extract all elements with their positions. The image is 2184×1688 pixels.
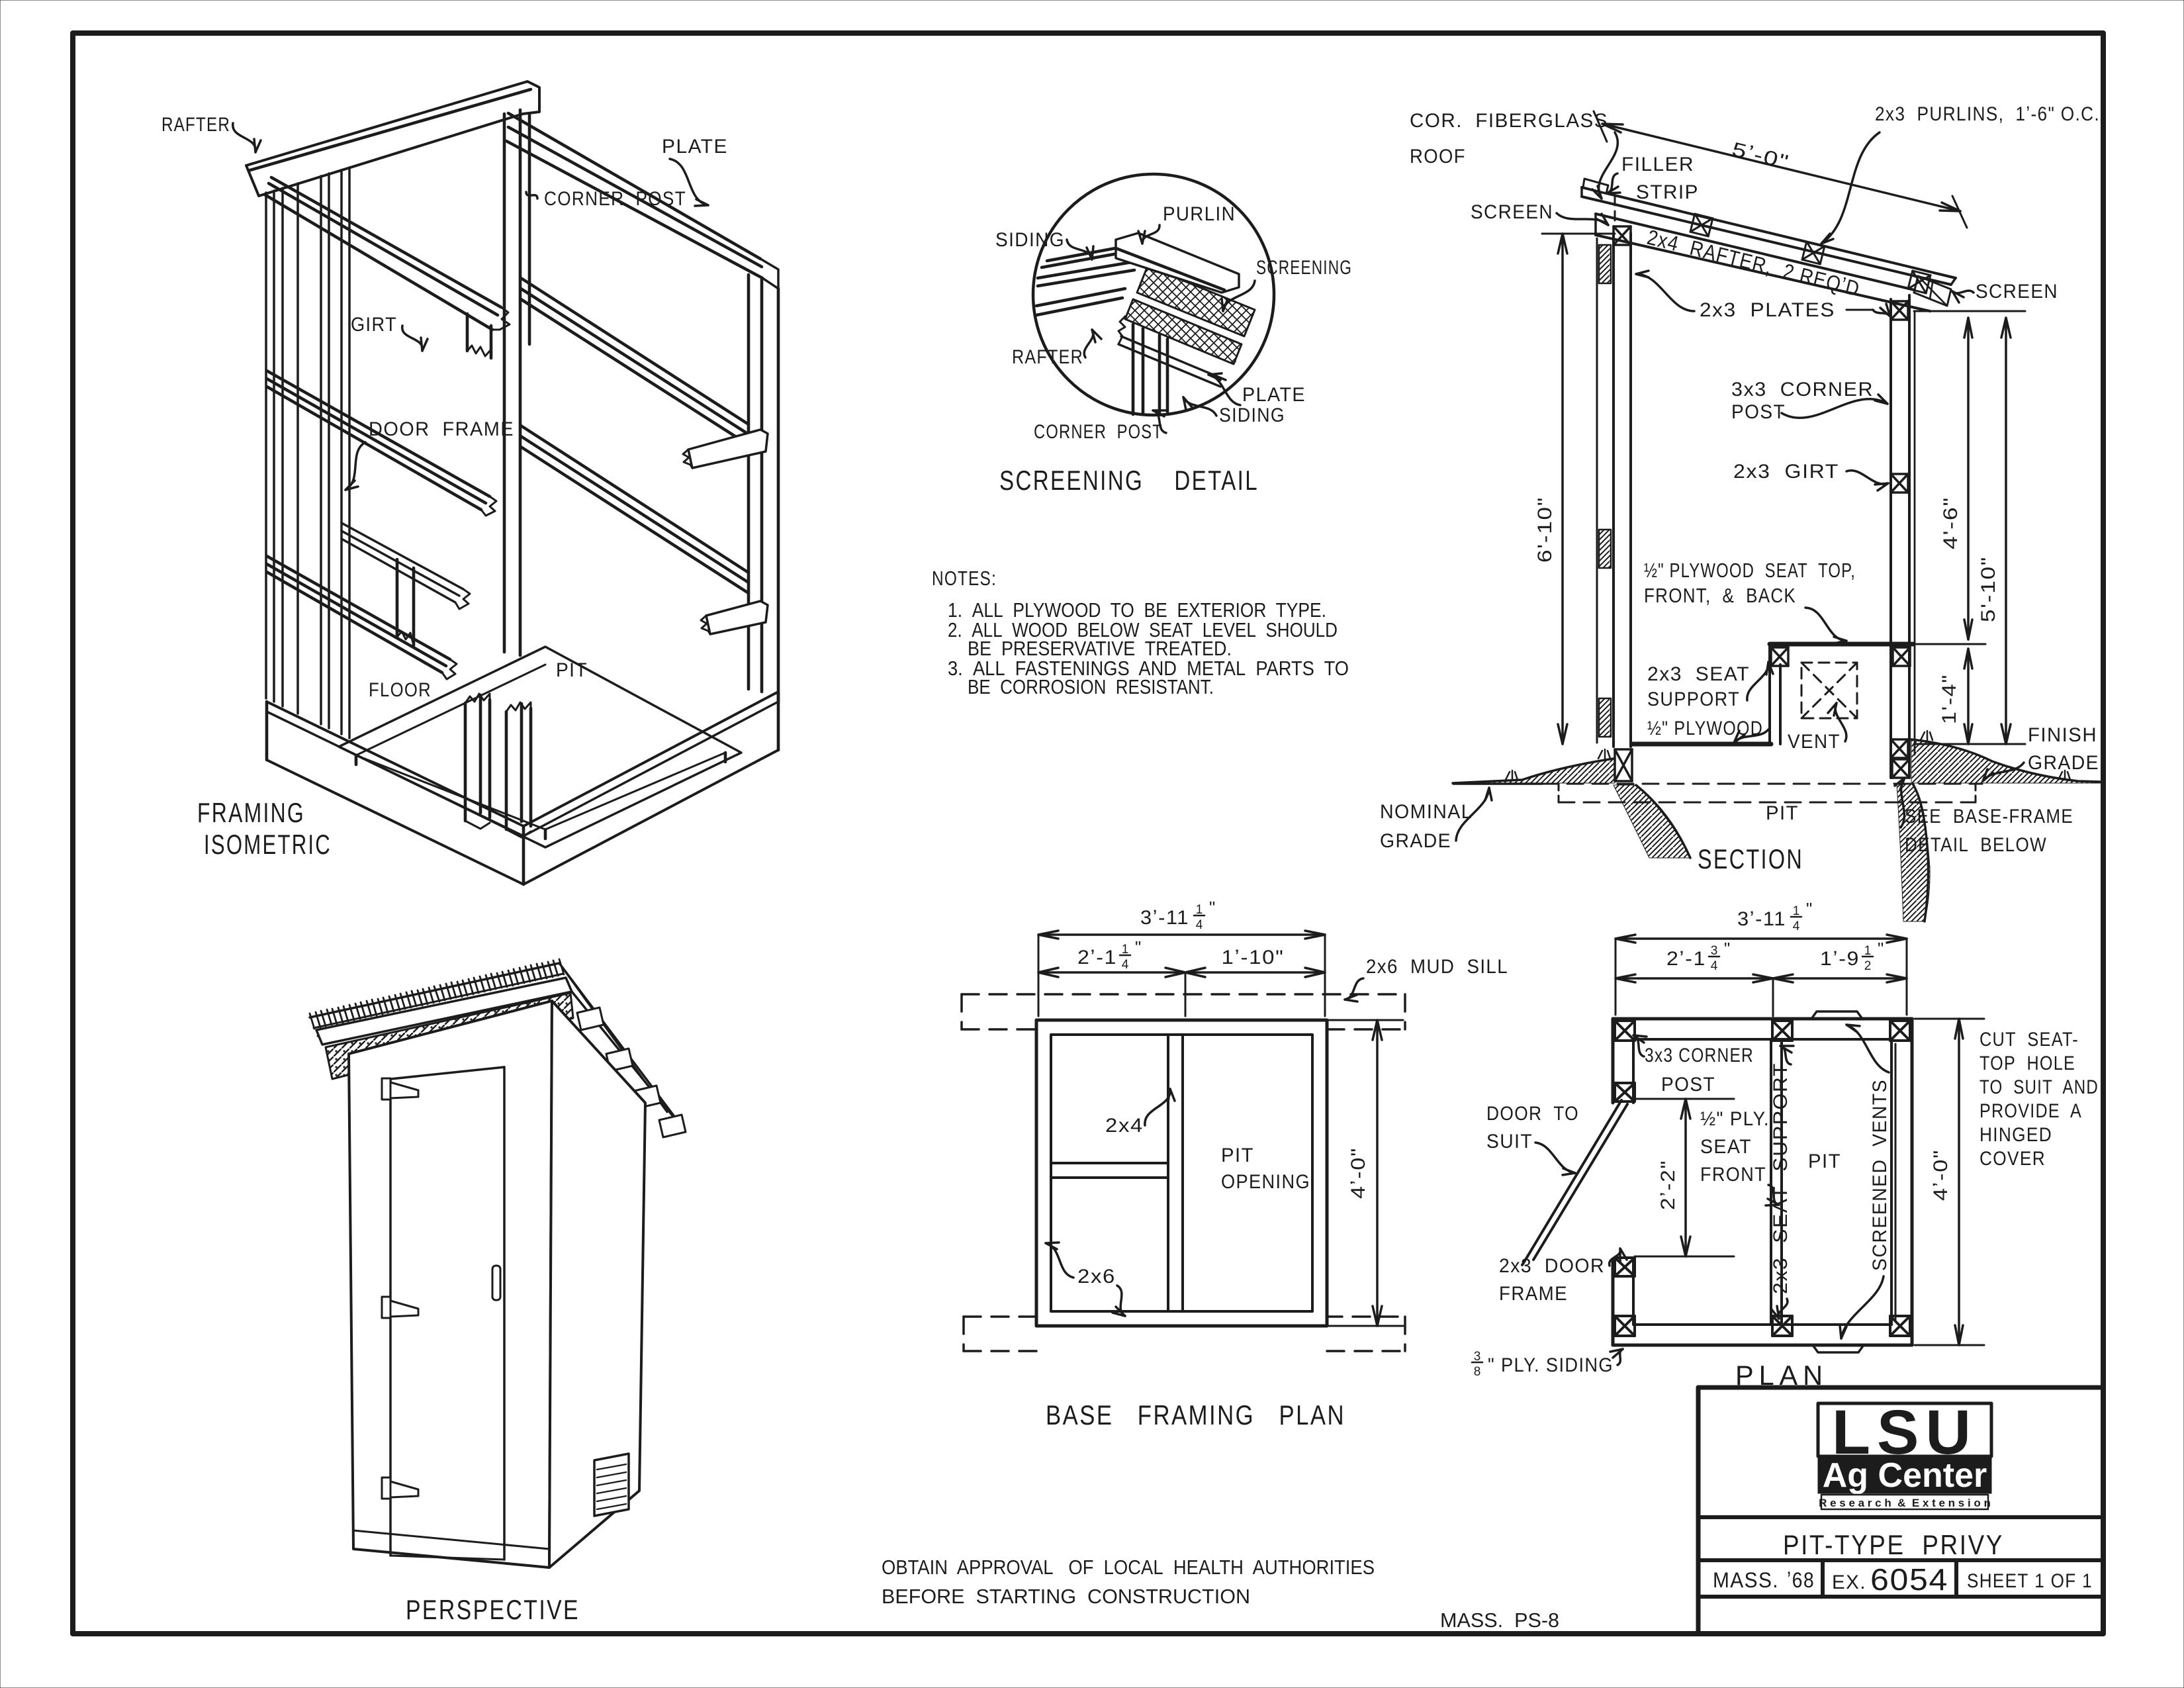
svg-text:2ʼ-1: 2ʼ-1 bbox=[1077, 947, 1117, 968]
svg-text:2x4: 2x4 bbox=[1105, 1115, 1144, 1137]
svg-text:": " bbox=[1878, 939, 1885, 959]
svg-text:SCREEN: SCREEN bbox=[1976, 281, 2058, 303]
svg-text:PLATE: PLATE bbox=[662, 136, 728, 158]
svg-text:TO SUIT AND: TO SUIT AND bbox=[1979, 1076, 2099, 1098]
svg-text:PIT-TYPE PRIVY: PIT-TYPE PRIVY bbox=[1783, 1529, 2004, 1560]
svg-text:DETAIL BELOW: DETAIL BELOW bbox=[1905, 834, 2047, 856]
svg-text:ROOF: ROOF bbox=[1410, 146, 1466, 167]
svg-text:2x3 SEAT SUPPORT: 2x3 SEAT SUPPORT bbox=[1770, 1062, 1792, 1294]
svg-text:COVER: COVER bbox=[1979, 1148, 2046, 1170]
svg-text:2x3 SEAT: 2x3 SEAT bbox=[1647, 663, 1750, 685]
svg-text:": " bbox=[1724, 939, 1731, 959]
svg-text:PIT: PIT bbox=[1766, 802, 1799, 824]
svg-text:DOOR FRAME: DOOR FRAME bbox=[369, 418, 514, 440]
svg-text:R e s e a r c h & E x t e n: R e s e a r c h & E x t e n s i o n bbox=[1819, 1497, 1991, 1509]
svg-text:FRAME: FRAME bbox=[1499, 1283, 1568, 1305]
svg-text:PLATE: PLATE bbox=[1242, 384, 1306, 406]
svg-text:SCREEN: SCREEN bbox=[1471, 201, 1553, 223]
svg-text:SIDING: SIDING bbox=[995, 229, 1065, 251]
svg-text:PERSPECTIVE: PERSPECTIVE bbox=[406, 1594, 580, 1625]
svg-text:4'-6": 4'-6" bbox=[1940, 496, 1962, 549]
svg-text:DOOR TO: DOOR TO bbox=[1486, 1103, 1579, 1125]
svg-text:PIT: PIT bbox=[556, 659, 588, 681]
svg-text:PIT: PIT bbox=[1221, 1145, 1254, 1166]
svg-text:2ʼ-1: 2ʼ-1 bbox=[1666, 948, 1706, 970]
svg-text:NOTES:: NOTES: bbox=[932, 567, 997, 590]
svg-text:RAFTER: RAFTER bbox=[161, 114, 230, 136]
svg-text:4: 4 bbox=[1196, 918, 1203, 932]
svg-text:TOP HOLE: TOP HOLE bbox=[1979, 1053, 2075, 1074]
svg-text:5'-10": 5'-10" bbox=[1978, 556, 1999, 622]
svg-text:NOMINAL: NOMINAL bbox=[1380, 801, 1473, 823]
svg-text:6'-10": 6'-10" bbox=[1534, 496, 1556, 563]
svg-text:POST: POST bbox=[1661, 1074, 1715, 1096]
svg-text:PROVIDE A: PROVIDE A bbox=[1979, 1100, 2082, 1122]
svg-text:ʼ68: ʼ68 bbox=[1787, 1568, 1815, 1592]
svg-text:4ʼ-0": 4ʼ-0" bbox=[1347, 1147, 1369, 1199]
svg-text:SCREENING DETAIL: SCREENING DETAIL bbox=[999, 465, 1259, 496]
svg-text:": " bbox=[1135, 937, 1142, 957]
svg-text:EX.: EX. bbox=[1832, 1571, 1866, 1593]
svg-text:3x3 CORNER: 3x3 CORNER bbox=[1645, 1045, 1754, 1066]
svg-text:3ʼ-11: 3ʼ-11 bbox=[1140, 907, 1189, 929]
svg-text:FINISH: FINISH bbox=[2028, 724, 2097, 746]
svg-text:SCREENED VENTS: SCREENED VENTS bbox=[1869, 1079, 1891, 1271]
svg-text:2ʼ-2": 2ʼ-2" bbox=[1657, 1160, 1679, 1210]
svg-text:GRADE: GRADE bbox=[1380, 830, 1451, 852]
svg-text:6054: 6054 bbox=[1870, 1562, 1948, 1597]
svg-text:BASE FRAMING PLAN: BASE FRAMING PLAN bbox=[1046, 1399, 1345, 1430]
svg-text:SECTION: SECTION bbox=[1698, 843, 1803, 874]
svg-text:FRAMING: FRAMING bbox=[197, 797, 305, 828]
svg-text:FILLER: FILLER bbox=[1621, 154, 1694, 175]
svg-text:CUT SEAT-: CUT SEAT- bbox=[1979, 1029, 2079, 1051]
svg-text:SHEET 1 OF 1: SHEET 1 OF 1 bbox=[1967, 1570, 2093, 1592]
svg-text:2x3 DOOR: 2x3 DOOR bbox=[1499, 1255, 1605, 1277]
svg-text:2x6: 2x6 bbox=[1077, 1266, 1116, 1288]
svg-text:ISOMETRIC: ISOMETRIC bbox=[204, 829, 332, 860]
svg-text:2x3 PURLINS, 1ʼ-6" O.C.: 2x3 PURLINS, 1ʼ-6" O.C. bbox=[1875, 103, 2100, 125]
svg-text:": " bbox=[1209, 898, 1216, 917]
svg-text:GRADE: GRADE bbox=[2028, 752, 2099, 774]
svg-text:½" PLYWOOD SEAT TOP,: ½" PLYWOOD SEAT TOP, bbox=[1644, 559, 1856, 582]
svg-text:CORNER POST: CORNER POST bbox=[544, 188, 686, 210]
svg-text:1'-4": 1'-4" bbox=[1938, 674, 1960, 724]
svg-text:RAFTER: RAFTER bbox=[1012, 346, 1083, 368]
svg-text:SEAT: SEAT bbox=[1700, 1136, 1752, 1158]
svg-text:SCREENING: SCREENING bbox=[1256, 257, 1352, 279]
svg-text:SEE BASE-FRAME: SEE BASE-FRAME bbox=[1905, 806, 2073, 827]
svg-text:3x3 CORNER: 3x3 CORNER bbox=[1731, 379, 1874, 400]
svg-text:STRIP: STRIP bbox=[1636, 181, 1699, 203]
svg-text:4: 4 bbox=[1711, 959, 1718, 973]
svg-text:4ʼ-0": 4ʼ-0" bbox=[1930, 1149, 1952, 1201]
svg-text:SUPPORT: SUPPORT bbox=[1647, 688, 1740, 710]
svg-text:": " bbox=[1806, 899, 1813, 919]
svg-text:Ag Center: Ag Center bbox=[1823, 1456, 1987, 1495]
svg-text:FLOOR: FLOOR bbox=[369, 679, 432, 701]
svg-text:2: 2 bbox=[1864, 959, 1872, 973]
svg-text:CORNER POST: CORNER POST bbox=[1034, 421, 1163, 443]
svg-text:COR. FIBERGLASS: COR. FIBERGLASS bbox=[1410, 110, 1608, 132]
svg-text:FRONT, & BACK: FRONT, & BACK bbox=[1644, 584, 1796, 607]
svg-text:HINGED: HINGED bbox=[1979, 1124, 2052, 1146]
svg-text:2x3 PLATES: 2x3 PLATES bbox=[1700, 299, 1835, 321]
svg-text:SUIT: SUIT bbox=[1486, 1131, 1533, 1152]
svg-text:MASS. PS-8: MASS. PS-8 bbox=[1440, 1609, 1559, 1632]
svg-text:BEFORE STARTING CONSTRUCTION: BEFORE STARTING CONSTRUCTION bbox=[882, 1585, 1250, 1608]
svg-text:OPENING: OPENING bbox=[1221, 1171, 1310, 1193]
svg-text:PIT: PIT bbox=[1808, 1150, 1841, 1172]
svg-text:VENT: VENT bbox=[1788, 731, 1841, 753]
svg-text:FRONT: FRONT bbox=[1700, 1164, 1766, 1186]
svg-text:½" PLY.: ½" PLY. bbox=[1700, 1108, 1770, 1130]
svg-text:4: 4 bbox=[1793, 919, 1800, 933]
svg-text:4: 4 bbox=[1122, 958, 1129, 972]
svg-text:GIRT: GIRT bbox=[351, 314, 397, 336]
svg-text:1ʼ-10": 1ʼ-10" bbox=[1222, 947, 1285, 968]
svg-text:8: 8 bbox=[1474, 1365, 1481, 1379]
svg-text:3ʼ-11: 3ʼ-11 bbox=[1737, 908, 1786, 930]
svg-text:2x6 MUD SILL: 2x6 MUD SILL bbox=[1366, 956, 1508, 978]
svg-text:2x3 GIRT: 2x3 GIRT bbox=[1733, 461, 1839, 483]
svg-text:1ʼ-9: 1ʼ-9 bbox=[1820, 948, 1860, 970]
svg-text:PURLIN: PURLIN bbox=[1163, 203, 1236, 225]
svg-text:BE CORROSION RESISTANT.: BE CORROSION RESISTANT. bbox=[968, 675, 1214, 698]
svg-text:POST: POST bbox=[1731, 401, 1786, 423]
svg-text:" PLY. SIDING: " PLY. SIDING bbox=[1488, 1354, 1614, 1376]
svg-text:OBTAIN APPROVAL OF LOCAL: OBTAIN APPROVAL OF LOCAL HEALTH AUTHORIT… bbox=[882, 1556, 1375, 1579]
svg-text:SIDING: SIDING bbox=[1219, 404, 1285, 426]
svg-text:MASS.: MASS. bbox=[1713, 1568, 1779, 1592]
